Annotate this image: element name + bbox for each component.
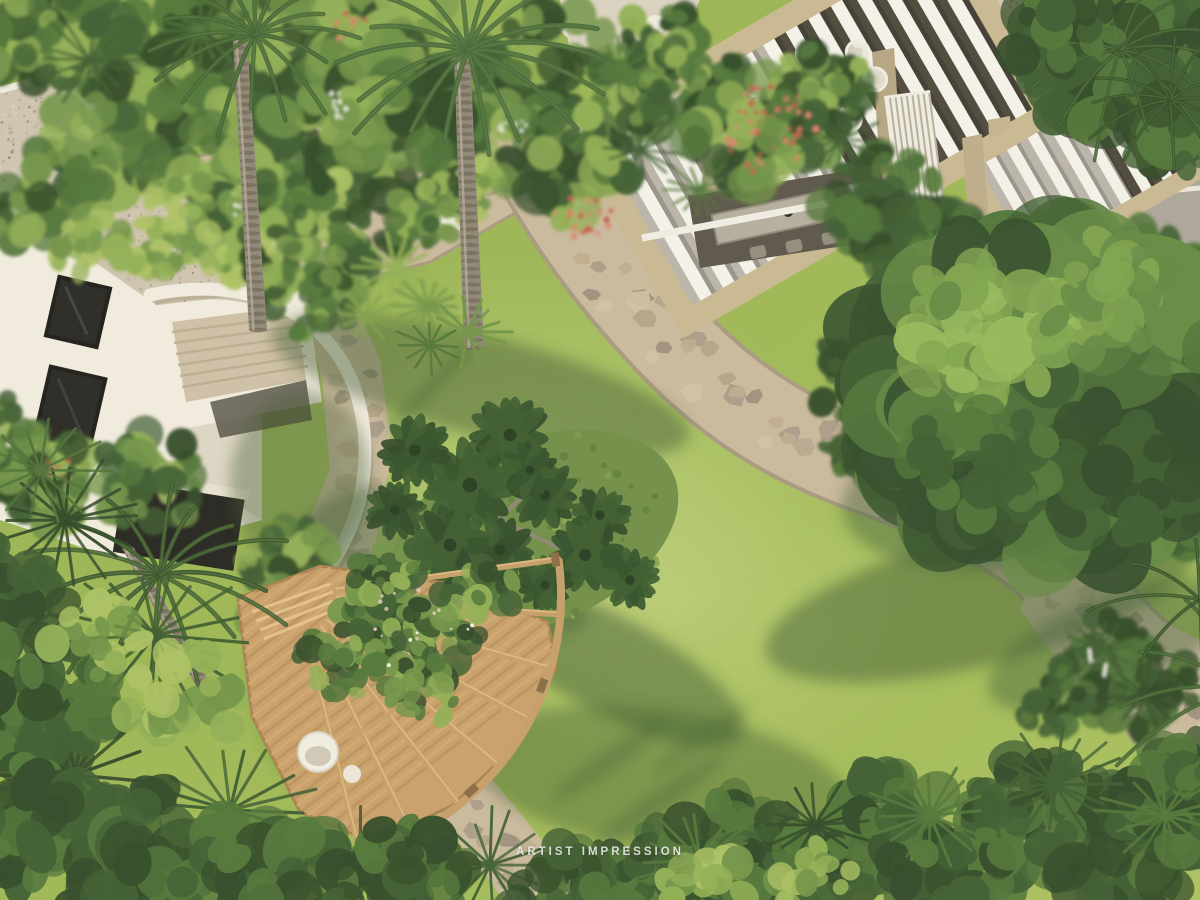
light-wash [0,0,1200,900]
scene-svg [0,0,1200,900]
artist-impression-caption: ARTIST IMPRESSION [516,846,684,858]
garden-aerial-render: ARTIST IMPRESSION [0,0,1200,900]
